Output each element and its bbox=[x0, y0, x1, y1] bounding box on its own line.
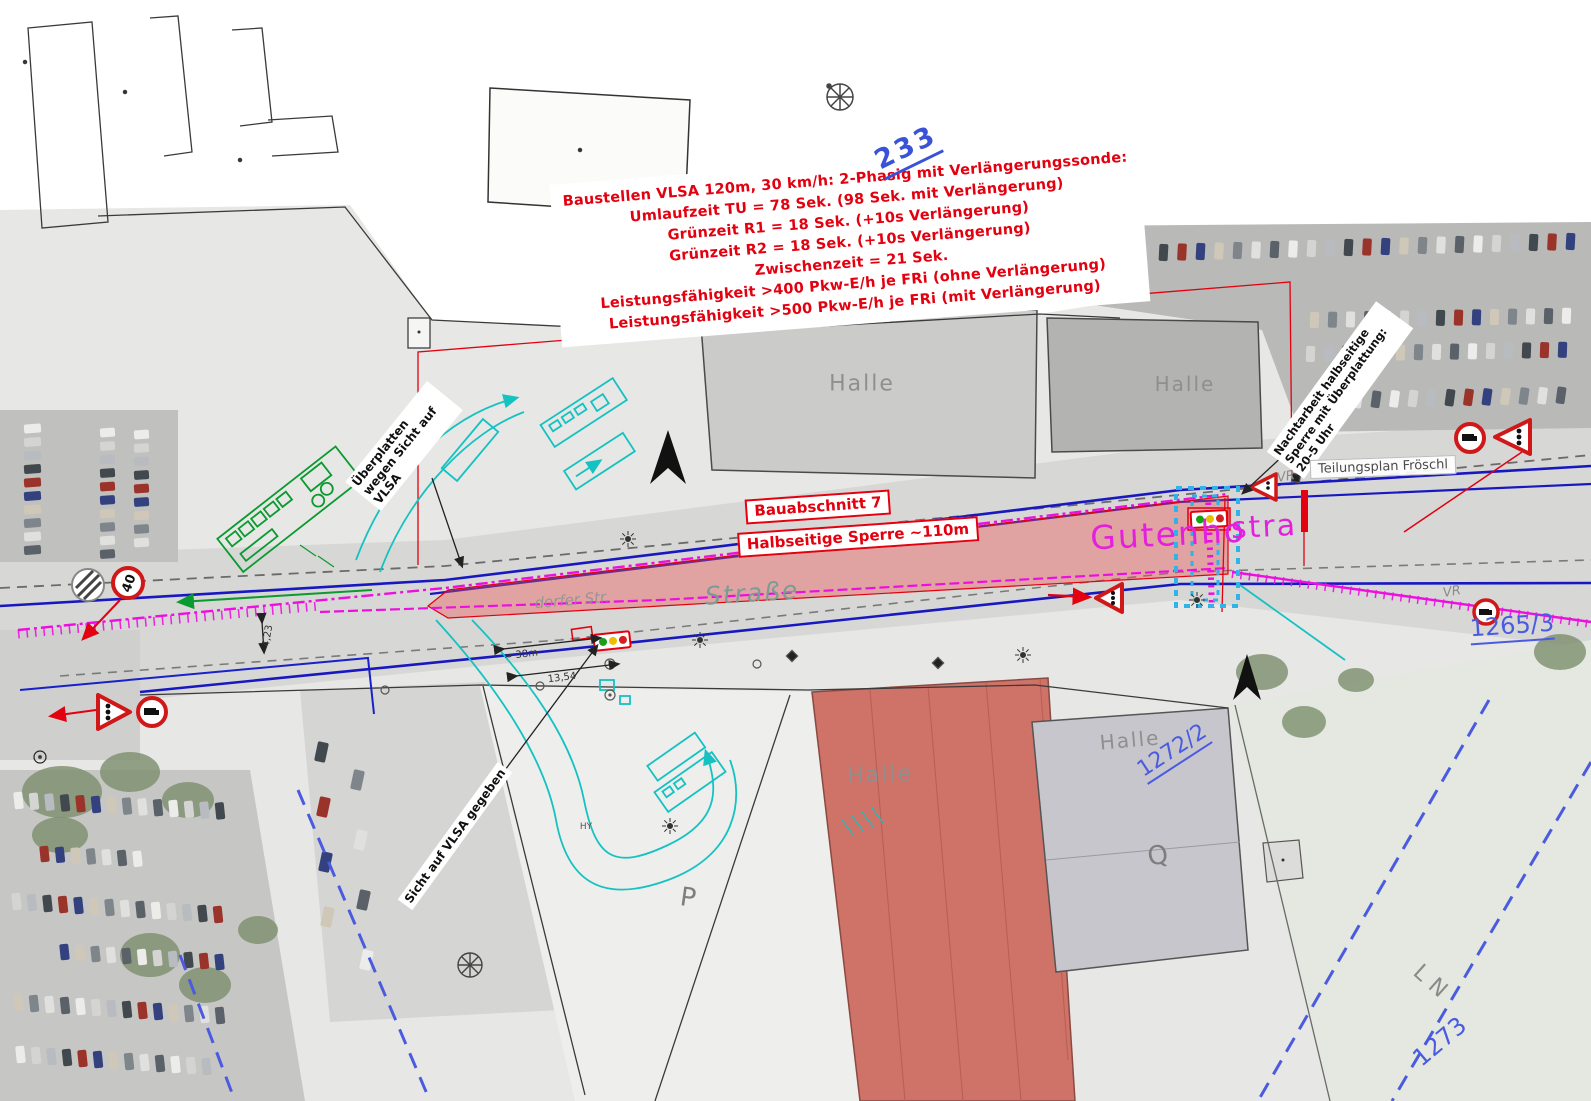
street-name-magenta-right: stra bbox=[1230, 508, 1298, 546]
sign-no-trucks-left bbox=[138, 698, 166, 726]
traffic-plan-sheet: 40 bbox=[0, 0, 1591, 1101]
building-label-halle-3: Halle bbox=[847, 761, 914, 788]
hydrant-label: HY bbox=[580, 822, 592, 832]
building-label-halle-1: Halle bbox=[829, 372, 895, 397]
sign-end-of-restrictions bbox=[72, 569, 104, 601]
sign-no-trucks-right bbox=[1456, 424, 1484, 452]
survey-mark-vr-1: VR bbox=[1442, 583, 1462, 601]
parcel-number-1265-3: 1265/3 bbox=[1469, 609, 1555, 646]
street-name-magenta-left: Gutenho bbox=[1089, 510, 1247, 557]
wheel-symbol-top bbox=[827, 84, 853, 110]
wheel-symbol-bottom bbox=[458, 953, 482, 977]
building-label-halle-2: Halle bbox=[1155, 372, 1216, 396]
traffic-light-icon-west bbox=[593, 631, 630, 651]
